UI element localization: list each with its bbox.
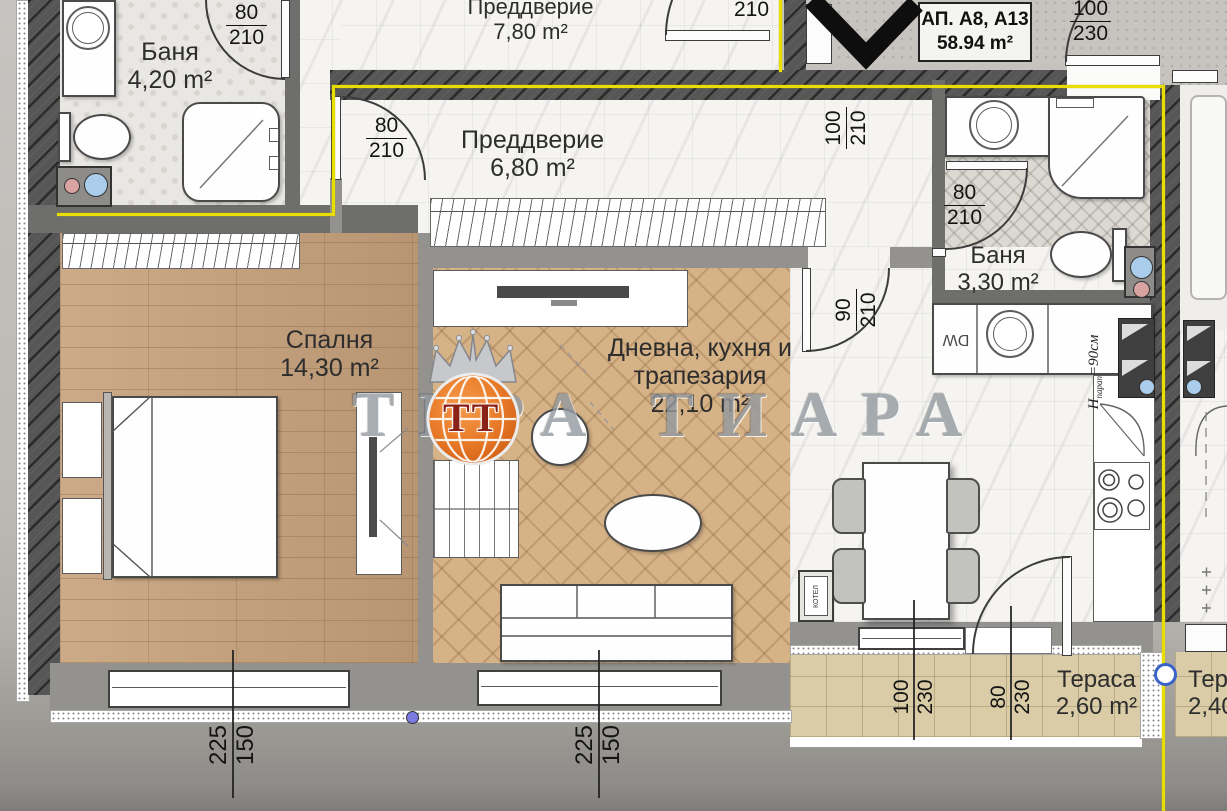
bedroom-label: Спалня 14,30 m² bbox=[272, 326, 387, 382]
cooktop-icon bbox=[1094, 462, 1150, 530]
bath1-door-width: 80 bbox=[232, 1, 261, 25]
bath2-sink-inner bbox=[976, 107, 1012, 143]
terrace1-label: Тераса 2,60 m² bbox=[1044, 667, 1149, 721]
chair-right-bottom bbox=[946, 548, 980, 604]
living-tv-unit bbox=[433, 270, 688, 327]
bedroom-door-width: 80 bbox=[372, 114, 401, 138]
bookcase-icon bbox=[433, 460, 519, 558]
entry-side-dim: 100 210 bbox=[821, 78, 871, 178]
bath2-door-jamb bbox=[932, 248, 946, 257]
terrace-window-width: 80 bbox=[987, 682, 1011, 711]
entry-side-height: 210 bbox=[846, 107, 871, 148]
hot-water-dot bbox=[64, 178, 80, 194]
terrace-window-dim: 80 230 bbox=[986, 647, 1036, 747]
terrace-edge bbox=[790, 737, 1142, 749]
bedroom-window-height: 150 bbox=[233, 722, 260, 768]
bath1-label: Баня 4,20 m² bbox=[110, 38, 230, 94]
upper-hall-name: Преддверие bbox=[468, 0, 594, 19]
boiler-box: КОТЕЛ bbox=[798, 570, 834, 622]
neighbor-water-dot bbox=[1186, 379, 1202, 395]
entry-door-dim: 100 230 bbox=[1070, 0, 1111, 45]
hall-bottom-wall-right bbox=[890, 247, 932, 268]
neighbor-entry-sill bbox=[1172, 70, 1218, 83]
apartment-id-box: АП. А8, А13 58.94 m² bbox=[918, 2, 1032, 62]
bed-icon bbox=[112, 396, 278, 578]
entry-jamb-wall bbox=[784, 0, 806, 70]
neighbor-bathtub bbox=[1190, 95, 1227, 300]
terrace-door-width: 100 bbox=[890, 676, 914, 717]
terrace2-label: Тераса 2,40 m² bbox=[1188, 667, 1227, 721]
bedroom-door-height: 210 bbox=[366, 138, 407, 163]
living-name-line1: Дневна, кухня и bbox=[608, 334, 792, 362]
parapet-sub: парап bbox=[1094, 376, 1104, 399]
bath2-area: 3,30 m² bbox=[957, 269, 1038, 296]
parapet-h: H bbox=[1086, 399, 1102, 410]
entry-side-width: 100 bbox=[822, 107, 846, 148]
bath1-shower bbox=[182, 102, 280, 202]
terrace1-name: Тераса bbox=[1057, 666, 1136, 693]
kitchen-door-height: 210 bbox=[856, 289, 881, 330]
dining-table-icon bbox=[862, 462, 950, 620]
bath2-cold-dot bbox=[1130, 256, 1153, 279]
boundary-line-left-horiz bbox=[57, 213, 335, 216]
chair-left-bottom bbox=[832, 548, 866, 604]
parapet-val: =90см bbox=[1086, 335, 1102, 376]
floor-plan-canvas: КОТЕЛ bbox=[0, 0, 1227, 811]
bed-headboard bbox=[103, 392, 112, 580]
terrace-window-height: 230 bbox=[1011, 676, 1035, 717]
terrace-door-height: 230 bbox=[914, 676, 938, 717]
bedroom-window-width: 225 bbox=[206, 722, 233, 768]
bath1-door-height: 210 bbox=[226, 25, 267, 50]
boundary-line-top bbox=[332, 85, 1164, 88]
living-tv-icon bbox=[497, 286, 629, 298]
marker-dot-right bbox=[1154, 663, 1177, 686]
nightstand-top bbox=[62, 402, 102, 478]
bath2-hot-dot bbox=[1133, 281, 1150, 298]
upper-hall-label: Преддверие 7,80 m² bbox=[448, 0, 613, 44]
bath2-door-width: 80 bbox=[950, 181, 979, 205]
bath1-toilet-tank bbox=[58, 112, 71, 162]
terrace1-area: 2,60 m² bbox=[1056, 693, 1137, 720]
boundary-line-entry bbox=[779, 0, 782, 72]
coffee-table-icon bbox=[604, 494, 702, 552]
apartment-area: 58.94 m² bbox=[937, 32, 1013, 56]
parapet-note: Hпарап=90см bbox=[1086, 302, 1106, 442]
chair-right-top bbox=[946, 478, 980, 534]
bath1-shower-control2 bbox=[269, 156, 279, 170]
logo-initials: ТТ bbox=[443, 394, 500, 441]
kitchen-door-width: 90 bbox=[832, 295, 856, 324]
south-sill-strip bbox=[50, 710, 792, 723]
bath2-door-height: 210 bbox=[944, 205, 985, 230]
terrace2-name: Тераса bbox=[1188, 666, 1227, 693]
boiler-label: КОТЕЛ bbox=[813, 585, 820, 608]
bedroom-door-dim: 80 210 bbox=[366, 114, 407, 162]
kitchen-door-dim: 90 210 bbox=[831, 260, 881, 360]
apartment-id: АП. А8, А13 bbox=[921, 8, 1028, 32]
bath1-sink-inner bbox=[72, 12, 104, 44]
bath1-name: Баня bbox=[141, 38, 199, 66]
cold-water-dot bbox=[84, 173, 108, 197]
entry-opening bbox=[1067, 60, 1160, 100]
bedroom-tv-icon bbox=[369, 437, 377, 537]
bedroom-name: Спалня bbox=[286, 326, 373, 354]
dishwasher-label: DW bbox=[938, 324, 974, 348]
terrace-door-dim: 100 230 bbox=[889, 647, 939, 747]
living-window-height: 150 bbox=[599, 722, 626, 768]
bath2-door-dim: 80 210 bbox=[944, 181, 985, 229]
bath2-shower-control bbox=[1056, 98, 1094, 108]
nightstand-bottom bbox=[62, 498, 102, 574]
bath1-area: 4,20 m² bbox=[128, 66, 213, 94]
hall-area: 6,80 m² bbox=[490, 154, 575, 182]
bath2-shower bbox=[1048, 96, 1145, 199]
bath1-toilet-icon bbox=[73, 114, 131, 160]
upper-hall-door-dim: 210 bbox=[731, 0, 772, 22]
chair-left-top bbox=[832, 478, 866, 534]
kitchen-water-dot bbox=[1139, 379, 1155, 395]
kitchen-sink-inner bbox=[993, 317, 1027, 351]
entry-jamb-sill bbox=[806, 4, 832, 64]
bath2-name: Баня bbox=[970, 242, 1025, 269]
entry-door-width: 100 bbox=[1070, 0, 1111, 21]
upper-hall-door-height: 210 bbox=[731, 0, 772, 22]
hall-bottom-wall-left bbox=[418, 247, 808, 268]
bedroom-window-dim: 225 150 bbox=[208, 695, 258, 795]
left-outer-wall bbox=[28, 0, 60, 695]
living-tv-stand bbox=[551, 300, 577, 306]
neighbor-terrace-door bbox=[1185, 624, 1227, 652]
hall-label: Преддверие 6,80 m² bbox=[450, 126, 615, 182]
bath2-label: Баня 3,30 m² bbox=[948, 243, 1048, 297]
bath1-shower-control bbox=[269, 128, 279, 142]
bedroom-wardrobe bbox=[62, 233, 300, 269]
upper-hall-area: 7,80 m² bbox=[493, 19, 568, 44]
marker-dot-left bbox=[406, 711, 419, 724]
boundary-line-left-vert bbox=[332, 85, 335, 216]
boundary-line-right bbox=[1162, 85, 1165, 811]
living-window-dim: 225 150 bbox=[574, 695, 624, 795]
terrace2-area: 2,40 m² bbox=[1188, 693, 1227, 720]
bath2-toilet-icon bbox=[1050, 231, 1112, 278]
bath1-bottom-wall bbox=[28, 205, 418, 233]
entry-door-height: 230 bbox=[1070, 21, 1111, 46]
sofa-icon bbox=[500, 584, 733, 662]
hall-wardrobe bbox=[430, 198, 826, 247]
hall-name: Преддверие bbox=[461, 126, 604, 154]
living-window-width: 225 bbox=[572, 722, 599, 768]
bath1-door-dim: 80 210 bbox=[226, 1, 267, 49]
